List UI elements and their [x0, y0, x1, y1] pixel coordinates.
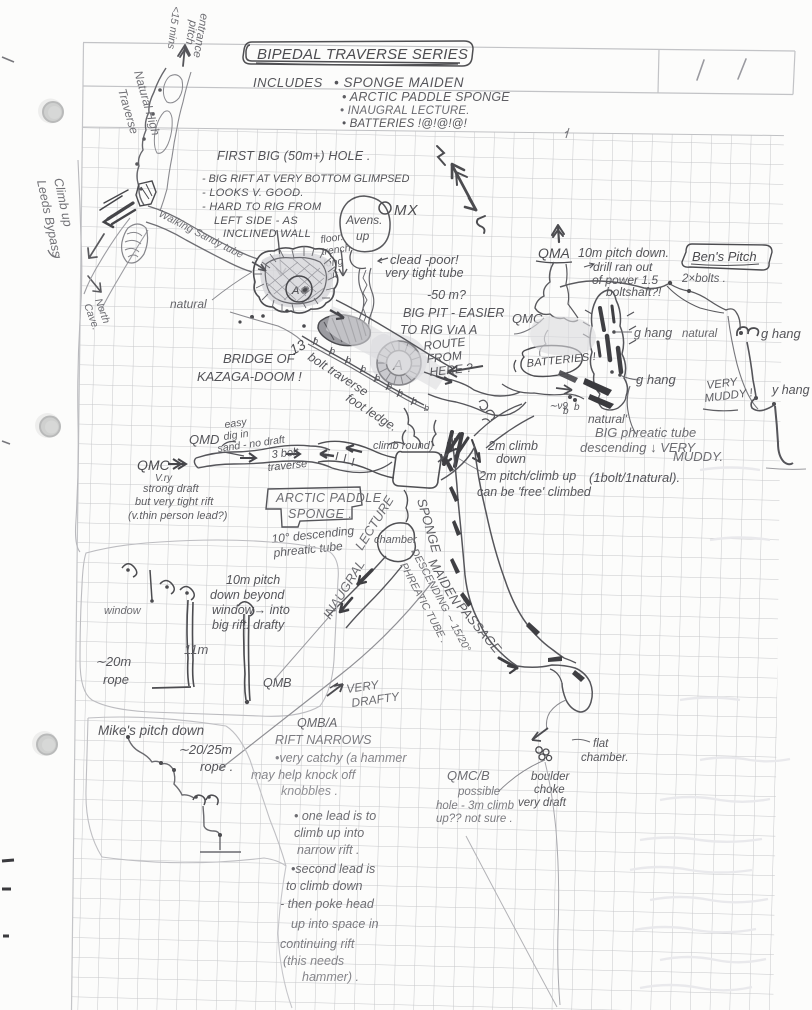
svg-text:LEFT SIDE - AS: LEFT SIDE - AS	[214, 215, 298, 227]
svg-text:natural: natural	[170, 297, 207, 311]
svg-text:BIG phreatic tube: BIG phreatic tube	[595, 425, 696, 440]
svg-text:strong draft: strong draft	[143, 483, 200, 495]
svg-text:MX: MX	[394, 202, 419, 219]
svg-text:drill ran out: drill ran out	[593, 260, 653, 274]
svg-text:climb up into: climb up into	[294, 826, 364, 840]
svg-text:2m pitch/climb up: 2m pitch/climb up	[478, 469, 576, 483]
svg-text:11m: 11m	[184, 642, 208, 657]
svg-text:may help knock off: may help knock off	[251, 768, 357, 782]
svg-text:boltshaft?!: boltshaft?!	[606, 285, 662, 299]
svg-text:QMC: QMC	[137, 457, 171, 473]
svg-text:QMC/B: QMC/B	[447, 768, 490, 783]
svg-text:hole - 3m climb: hole - 3m climb	[436, 800, 515, 812]
svg-text:SPONGE .: SPONGE .	[288, 507, 352, 521]
svg-text:- HARD TO RIG FROM: - HARD TO RIG FROM	[202, 201, 322, 213]
svg-text:b: b	[424, 403, 429, 413]
svg-text:up?? not sure .: up?? not sure .	[436, 813, 513, 825]
svg-text:•second lead is: •second lead is	[291, 862, 375, 876]
svg-text:(this needs: (this needs	[283, 954, 344, 968]
svg-text:2×bolts .: 2×bolts .	[681, 273, 726, 285]
svg-text:RIFT NARROWS: RIFT NARROWS	[275, 733, 372, 747]
svg-text:but very tight rift: but very tight rift	[135, 496, 214, 508]
svg-text:•very catchy (a hammer: •very catchy (a hammer	[275, 751, 407, 765]
svg-text:y hang: y hang	[771, 383, 810, 397]
svg-text:MUDDY.: MUDDY.	[673, 449, 723, 464]
svg-text:boulder: boulder	[531, 771, 571, 783]
svg-text:• ARCTIC PADDLE SPONGE: • ARCTIC PADDLE SPONGE	[342, 90, 510, 104]
svg-text:continuing rift: continuing rift	[280, 937, 355, 951]
svg-text:- LOOKS V. GOOD.: - LOOKS V. GOOD.	[202, 187, 304, 199]
svg-text:down: down	[496, 452, 526, 466]
svg-text:Avens.: Avens.	[345, 213, 382, 227]
svg-text:can be 'free' climbed: can be 'free' climbed	[477, 485, 592, 499]
svg-text:• INAUGRAL LECTURE.: • INAUGRAL LECTURE.	[340, 105, 470, 117]
svg-text:∼20/25m: ∼20/25m	[178, 742, 232, 757]
svg-text:rope .: rope .	[200, 759, 233, 774]
svg-text:ARCTIC PADDLE: ARCTIC PADDLE	[275, 491, 382, 505]
svg-text:QMD: QMD	[189, 432, 219, 447]
svg-text:TO RIG VıA A: TO RIG VıA A	[400, 323, 477, 337]
svg-text:BIG PIT - EASIER: BIG PIT - EASIER	[403, 306, 504, 320]
svg-text:INCLINED WALL: INCLINED WALL	[223, 228, 311, 240]
svg-text:• BATTERIES !@!@!@!: • BATTERIES !@!@!@!	[342, 118, 468, 130]
svg-text:window→ into: window→ into	[212, 603, 290, 617]
svg-text:QMA: QMA	[538, 245, 570, 261]
svg-text:Ben's Pitch: Ben's Pitch	[692, 249, 757, 264]
svg-text:INCLUDES: INCLUDES	[253, 75, 323, 90]
svg-text:big rift. drafty: big rift. drafty	[212, 618, 285, 632]
svg-text:• SPONGE MAIDEN: • SPONGE MAIDEN	[334, 75, 464, 90]
svg-text:up into space in: up into space in	[291, 917, 379, 931]
svg-text:down beyond: down beyond	[210, 588, 285, 602]
svg-text:chamber: chamber	[374, 534, 418, 546]
svg-text:to climb down: to climb down	[286, 879, 362, 893]
svg-text:BIPEDAL TRAVERSE SERIES: BIPEDAL TRAVERSE SERIES	[257, 46, 468, 63]
svg-text:BRIDGE OF: BRIDGE OF	[223, 351, 296, 366]
svg-text:chamber.: chamber.	[581, 752, 629, 764]
svg-text:natural': natural'	[588, 412, 628, 426]
svg-text:(v.thin person lead?): (v.thin person lead?)	[128, 510, 228, 522]
svg-text:(1bolt/1natural).: (1bolt/1natural).	[589, 470, 680, 485]
svg-text:possible: possible	[457, 786, 500, 798]
svg-text:natural: natural	[682, 328, 718, 340]
svg-text:Mike's pitch down: Mike's pitch down	[98, 723, 204, 738]
svg-text:- BIG RIFT AT VERY BOTTOM GLIM: - BIG RIFT AT VERY BOTTOM GLIMPSED	[202, 173, 410, 185]
svg-text:10m pitch: 10m pitch	[226, 573, 280, 587]
svg-text:g hang: g hang	[761, 326, 802, 341]
svg-text:QMB: QMB	[263, 676, 291, 690]
svg-text:narrow rift .: narrow rift .	[297, 843, 360, 857]
svg-text:clead -poor!: clead -poor!	[390, 252, 459, 267]
svg-text:rope: rope	[103, 672, 129, 687]
svg-text:KAZAGA-DOOM !: KAZAGA-DOOM !	[197, 369, 302, 384]
svg-text:hammer) .: hammer) .	[302, 970, 359, 984]
svg-text:• one lead is to: • one lead is to	[294, 809, 376, 823]
svg-text:-50 m?: -50 m?	[427, 288, 466, 302]
svg-text:window: window	[104, 605, 142, 617]
svg-text:up: up	[356, 229, 370, 243]
svg-text:b: b	[574, 402, 580, 413]
svg-text:QMB/A: QMB/A	[297, 716, 337, 730]
svg-text:very draft: very draft	[518, 797, 567, 809]
svg-text:A✺: A✺	[291, 285, 309, 297]
svg-text:10m pitch down.: 10m pitch down.	[578, 246, 669, 260]
svg-text:g hang: g hang	[634, 326, 672, 340]
svg-text:b: b	[563, 406, 569, 417]
svg-text:∼20m: ∼20m	[95, 654, 131, 669]
svg-text:flat: flat	[593, 738, 609, 750]
svg-text:FIRST BIG (50m+) HOLE .: FIRST BIG (50m+) HOLE .	[217, 149, 371, 163]
svg-text:- then poke head: - then poke head	[280, 897, 375, 911]
svg-text:g hang: g hang	[636, 372, 677, 387]
svg-text:climb round): climb round)	[373, 440, 434, 452]
svg-text:very tight tube: very tight tube	[385, 266, 464, 280]
svg-text:choke: choke	[534, 784, 565, 796]
svg-text:knobbles .: knobbles .	[281, 784, 338, 798]
